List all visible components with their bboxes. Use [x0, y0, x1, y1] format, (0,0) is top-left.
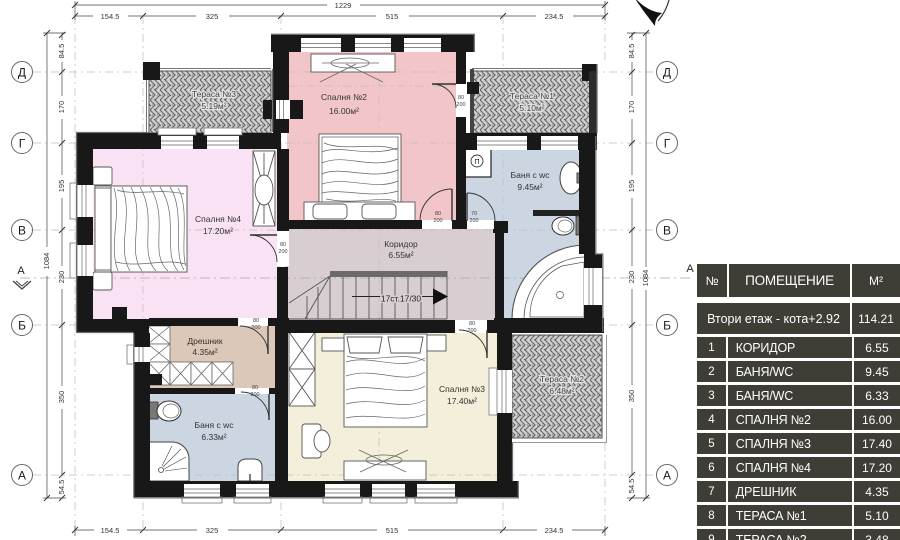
svg-text:17.20м²: 17.20м² — [203, 226, 233, 236]
svg-text:Тераса №1: Тераса №1 — [510, 91, 554, 101]
svg-text:Баня с wc: Баня с wc — [195, 420, 235, 430]
svg-text:200: 200 — [251, 325, 260, 331]
svg-text:4.35м²: 4.35м² — [192, 347, 217, 357]
svg-text:350: 350 — [57, 391, 66, 404]
svg-text:А: А — [18, 469, 26, 483]
svg-text:6.48м²: 6.48м² — [549, 386, 574, 396]
svg-text:84.5: 84.5 — [57, 44, 66, 59]
svg-text:234.5: 234.5 — [545, 526, 564, 535]
svg-text:234.5: 234.5 — [545, 12, 564, 21]
svg-text:195: 195 — [627, 180, 636, 193]
svg-text:350: 350 — [627, 390, 636, 403]
svg-text:54.5: 54.5 — [57, 480, 66, 495]
svg-text:А: А — [663, 469, 671, 483]
svg-text:515: 515 — [386, 526, 399, 535]
svg-text:16.00м²: 16.00м² — [329, 106, 359, 116]
svg-text:Тераса №3: Тераса №3 — [192, 89, 236, 99]
svg-text:80: 80 — [469, 321, 475, 327]
svg-text:1229: 1229 — [335, 1, 352, 10]
svg-text:1084: 1084 — [42, 253, 51, 270]
svg-text:80: 80 — [458, 95, 464, 101]
svg-text:А: А — [686, 263, 694, 275]
svg-text:515: 515 — [386, 12, 399, 21]
svg-text:1084: 1084 — [641, 270, 650, 287]
svg-text:70: 70 — [471, 211, 477, 217]
svg-text:5.10м²: 5.10м² — [519, 103, 544, 113]
svg-text:П: П — [474, 159, 479, 166]
svg-text:200: 200 — [250, 392, 259, 398]
svg-text:Г: Г — [19, 137, 26, 151]
svg-text:80: 80 — [253, 318, 259, 324]
svg-text:Д: Д — [18, 66, 26, 80]
svg-text:17.40м²: 17.40м² — [447, 396, 477, 406]
svg-text:Дрешник: Дрешник — [187, 336, 222, 346]
svg-text:200: 200 — [467, 328, 476, 334]
svg-text:9.45м²: 9.45м² — [517, 182, 542, 192]
svg-text:В: В — [663, 224, 671, 238]
svg-text:Тераса №2: Тераса №2 — [540, 374, 584, 384]
svg-text:80: 80 — [252, 385, 258, 391]
svg-text:В: В — [18, 224, 26, 238]
svg-text:325: 325 — [206, 12, 219, 21]
svg-text:17ст.17/30: 17ст.17/30 — [381, 294, 422, 304]
svg-text:54.5: 54.5 — [627, 479, 636, 494]
svg-text:170: 170 — [627, 101, 636, 114]
svg-text:230: 230 — [627, 271, 636, 284]
svg-text:Б: Б — [663, 319, 671, 333]
svg-text:80: 80 — [280, 242, 286, 248]
svg-text:5.19м²: 5.19м² — [201, 101, 226, 111]
svg-text:Коридор: Коридор — [384, 239, 418, 249]
svg-text:6.33м²: 6.33м² — [201, 432, 226, 442]
svg-text:Б: Б — [18, 319, 26, 333]
svg-text:200: 200 — [433, 218, 442, 224]
svg-text:Спалня №4: Спалня №4 — [195, 214, 241, 224]
svg-text:200: 200 — [456, 102, 465, 108]
svg-text:84.5: 84.5 — [627, 44, 636, 59]
svg-text:170: 170 — [57, 101, 66, 114]
svg-text:Г: Г — [664, 137, 671, 151]
svg-text:200: 200 — [469, 218, 478, 224]
svg-text:200: 200 — [278, 249, 287, 255]
svg-text:Баня с wc: Баня с wc — [511, 170, 551, 180]
svg-text:230: 230 — [57, 271, 66, 284]
svg-text:154.5: 154.5 — [101, 12, 120, 21]
svg-text:Спалня №2: Спалня №2 — [321, 92, 367, 102]
svg-text:325: 325 — [206, 526, 219, 535]
svg-text:80: 80 — [435, 211, 441, 217]
svg-text:Спалня №3: Спалня №3 — [439, 384, 485, 394]
svg-text:6.55м²: 6.55м² — [388, 250, 413, 260]
svg-text:А: А — [17, 265, 25, 277]
svg-text:Д: Д — [663, 66, 671, 80]
svg-text:154.5: 154.5 — [101, 526, 120, 535]
svg-text:195: 195 — [57, 180, 66, 193]
